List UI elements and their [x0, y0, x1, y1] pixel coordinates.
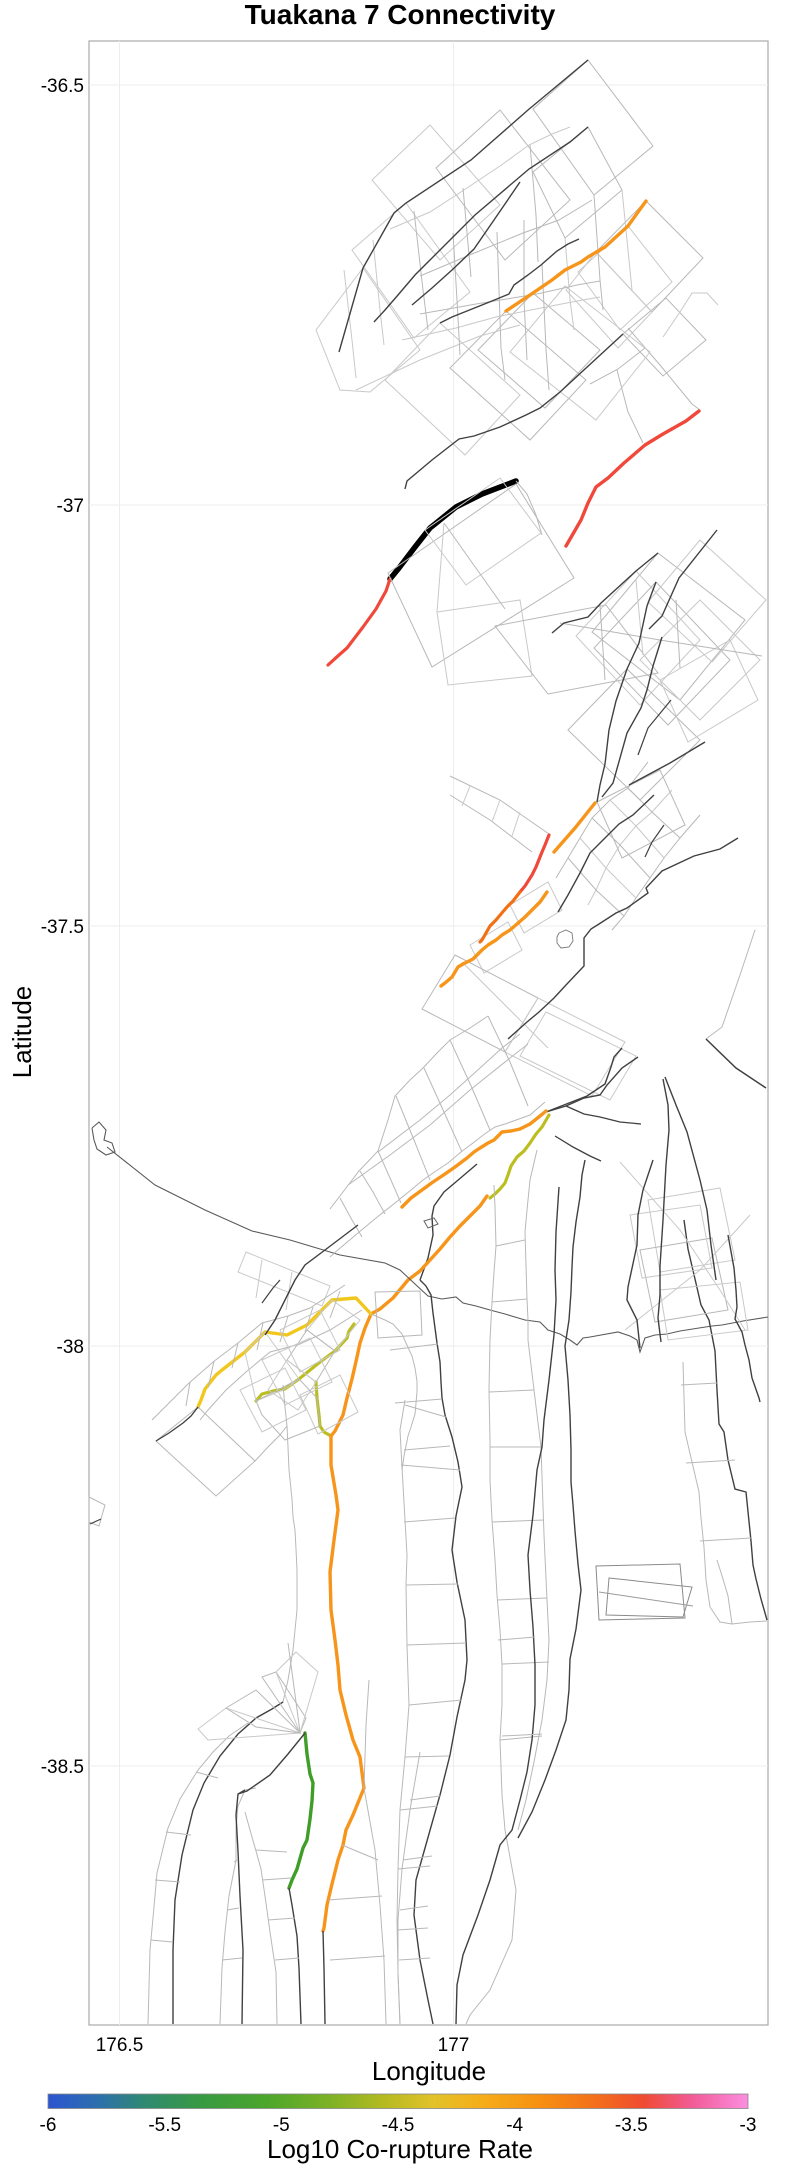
svg-text:-37: -37 [57, 496, 84, 517]
svg-text:-37.5: -37.5 [41, 917, 84, 938]
svg-text:Latitude: Latitude [7, 986, 37, 1079]
svg-text:177: 177 [438, 2035, 470, 2056]
svg-text:-38.5: -38.5 [41, 1757, 84, 1778]
svg-text:-5.5: -5.5 [148, 2115, 181, 2136]
svg-text:-6: -6 [40, 2115, 57, 2136]
svg-text:-4.5: -4.5 [382, 2115, 415, 2136]
svg-text:Log10 Co-rupture Rate: Log10 Co-rupture Rate [267, 2134, 533, 2164]
svg-text:Tuakana 7 Connectivity: Tuakana 7 Connectivity [245, 0, 556, 30]
svg-text:-38: -38 [57, 1337, 84, 1358]
svg-text:-36.5: -36.5 [41, 76, 84, 97]
svg-text:Longitude: Longitude [372, 2056, 486, 2086]
svg-text:-5: -5 [273, 2115, 290, 2136]
svg-text:-3: -3 [740, 2115, 757, 2136]
svg-text:-3.5: -3.5 [615, 2115, 648, 2136]
svg-text:-4: -4 [506, 2115, 523, 2136]
svg-text:176.5: 176.5 [96, 2035, 144, 2056]
